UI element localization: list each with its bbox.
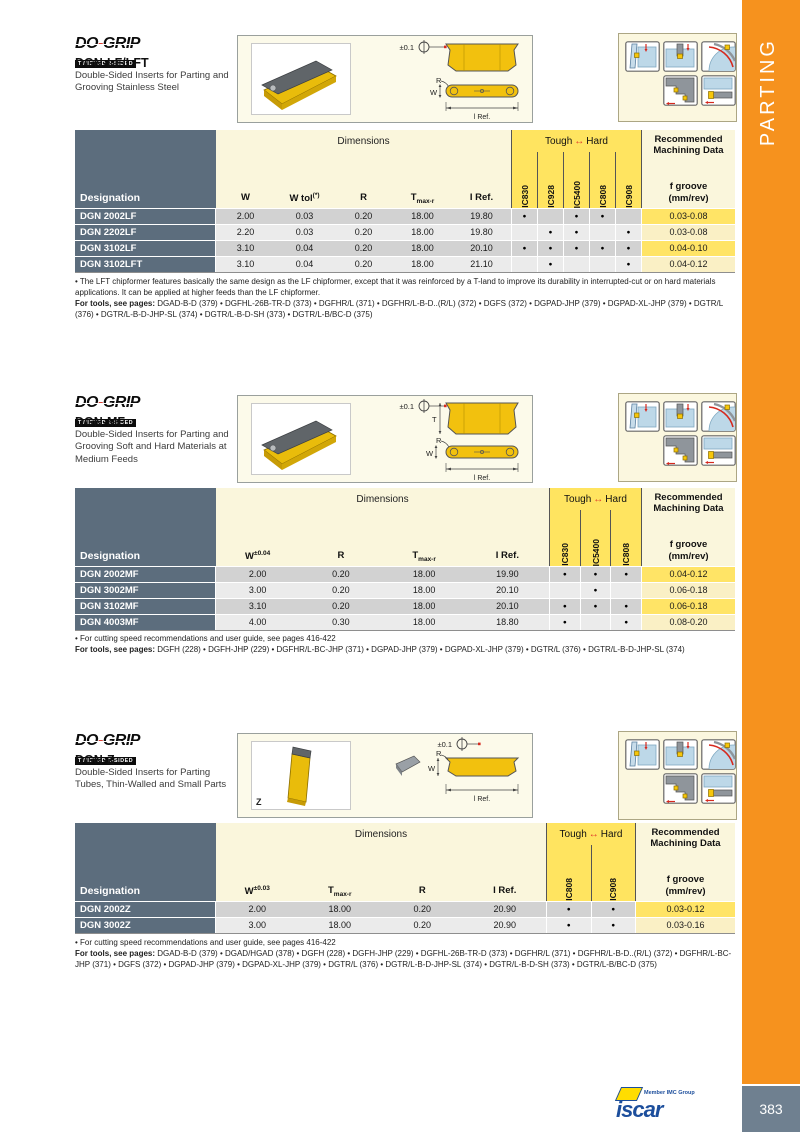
designation-cell: DGN 3002MF [75,583,216,598]
designation-cell: DGN 2202LF [75,225,216,240]
designation-cell: DGN 2002MF [75,567,216,582]
bar-parting-icon [663,401,698,432]
feed-cell: 0.04-0.10 [641,241,735,256]
length-ref-label: l Ref. [474,796,490,803]
table-row: DGN 3102LFT 3.100.040.2018.0021.10 ●● 0.… [75,256,735,272]
col-header-w: W±0.03 [216,885,299,901]
profile-grooving-icon [663,773,698,804]
table-row: DGN 3102MF 3.100.2018.0020.10 ●●● 0.06-0… [75,598,735,614]
tolerance-label: ±0.1 [437,740,452,749]
grade-header: IC5400 [580,510,611,566]
designation-cell: DGN 2002LF [75,209,216,224]
grade-header: IC928 [537,152,563,208]
bar-parting-icon [663,41,698,72]
dimensions-header-group: Dimensions W W tol(*) R Tmax-r I Ref. [216,130,511,208]
machining-header-group: Recommended Machining Data f groove(mm/r… [635,823,735,901]
section-note: • The LFT chipformer features basically … [75,277,737,298]
section-title: DGN-MF [75,415,125,429]
col-header-tmax: Tmax-r [299,885,382,901]
parting-blade-icon [625,739,660,770]
circular-machining-icon [701,41,736,72]
page-number-box: 383 [742,1086,800,1132]
iscar-logo: Member IMC Group iscar [612,1086,722,1128]
section-subtitle: Double-Sided Inserts for Parting and Gro… [75,429,235,466]
dimensions-header-group: Dimensions W±0.04 R Tmax-r I Ref. [216,488,549,566]
radius-label: R [436,749,442,758]
grades-header-group: Tough↔Hard IC830 IC928 IC5400 IC808 IC90… [511,130,641,208]
width-label: W [426,449,434,458]
member-imc-label: Member IMC Group [644,1090,695,1096]
feed-cell: 0.04-0.12 [641,257,735,272]
feed-cell: 0.06-0.18 [641,599,735,614]
logo-stripe [75,741,163,742]
insert-photo [251,43,351,115]
designation-cell: DGN 3102LFT [75,257,216,272]
table-row: DGN 3102LF 3.100.040.2018.0020.10 ●●●●● … [75,240,735,256]
feed-cell: 0.08-0.20 [641,615,735,630]
designation-header: Designation [75,130,216,208]
dogrip-wordmark: DO-GRIP [75,36,195,52]
table-row: DGN 3002MF 3.000.2018.0020.10 ● 0.06-0.1… [75,582,735,598]
insert-photo [251,403,351,475]
catalog-page: DO-GRIP TWISTED 2-SIDED DGN-LF/LFT Doubl… [0,0,800,1132]
table-header: Designation Dimensions W±0.03 Tmax-r R I… [75,823,735,901]
feed-cell: 0.04-0.12 [641,567,735,582]
machining-header-group: Recommended Machining Data f groove(mm/r… [641,488,735,566]
grade-header: IC808 [547,845,591,901]
dimension-drawing: ±0.1 R W l Ref. [356,736,528,817]
section-subtitle: Double-Sided Inserts for Parting and Gro… [75,70,230,95]
section-subtitle: Double-Sided Inserts for Parting Tubes, … [75,767,227,792]
dimension-drawing: ±0.1 R W l Ref. [356,38,528,122]
table-header: Designation Dimensions W±0.04 R Tmax-r I… [75,488,735,566]
technical-drawing-box: ±0.1 T R W l Ref. [237,395,533,483]
radius-label: R [436,76,442,85]
parting-blade-icon [625,401,660,432]
insert-photo-illustration [252,44,350,114]
table-header: Designation Dimensions W W tol(*) R Tmax… [75,130,735,208]
tough-hard-arrow: ↔ [587,829,601,840]
section-note: • For cutting speed recommendations and … [75,634,737,645]
tough-hard-arrow: ↔ [591,494,605,505]
parting-tab: PARTING [742,0,800,1084]
insert-table-dgn-mf: Designation Dimensions W±0.04 R Tmax-r I… [75,488,735,631]
parting-tab-label: PARTING [757,38,780,146]
grade-header: IC908 [591,845,636,901]
radius-label: R [436,436,442,445]
face-grooving-icon [701,75,736,106]
tough-hard-arrow: ↔ [572,136,586,147]
grade-header: IC908 [615,152,641,208]
tolerance-label: ±0.1 [399,402,414,411]
grade-header: IC830 [550,510,580,566]
designation-cell: DGN 2002Z [75,902,216,917]
thickness-label: T [432,415,437,424]
dimensions-header-group: Dimensions W±0.03 Tmax-r R I Ref. [216,823,546,901]
tools-reference: For tools, see pages: DGAD-B-D (379) • D… [75,949,737,970]
designation-cell: DGN 3102LF [75,241,216,256]
col-header-lref: I Ref. [464,885,547,901]
designation-header: Designation [75,488,216,566]
machining-header-group: Recommended Machining Data f groove(mm/r… [641,130,735,208]
length-ref-label: l Ref. [474,475,490,482]
section-title: DGN-Z [75,753,115,767]
col-header-lref: I Ref. [452,192,511,208]
logo-stripe [75,403,163,404]
application-icon-panel [618,33,737,122]
col-header-lref: I Ref. [466,550,549,566]
grade-header: IC830 [512,152,537,208]
dimension-drawing: ±0.1 T R W l Ref. [356,398,528,482]
table-row: DGN 2002MF 2.000.2018.0019.90 ●●● 0.04-0… [75,566,735,582]
face-grooving-icon [701,435,736,466]
parting-blade-icon [625,41,660,72]
bar-parting-icon [663,739,698,770]
designation-cell: DGN 3002Z [75,918,216,933]
table-row: DGN 2002LF 2.000.030.2018.0019.80 ●●● 0.… [75,208,735,224]
section-note: • For cutting speed recommendations and … [75,938,737,949]
designation-header: Designation [75,823,216,901]
page-number: 383 [759,1101,782,1117]
col-header-tmax: Tmax-r [383,550,466,566]
designation-cell: DGN 4003MF [75,615,216,630]
table-row: DGN 2002Z 2.0018.000.2020.90 ●● 0.03-0.1… [75,901,735,917]
grades-header-group: Tough↔Hard IC830 IC5400 IC808 [549,488,641,566]
table-row: DGN 3002Z 3.0018.000.2020.90 ●● 0.03-0.1… [75,917,735,933]
feed-cell: 0.06-0.18 [641,583,735,598]
logo-stripe [75,44,163,45]
col-header-wtol: W tol(*) [275,192,334,208]
designation-cell: DGN 3102MF [75,599,216,614]
feed-cell: 0.03-0.08 [641,209,735,224]
feed-cell: 0.03-0.12 [635,902,735,917]
width-label: W [430,88,438,97]
grade-header: IC5400 [563,152,589,208]
table-row: DGN 2202LF 2.200.030.2018.0019.80 ●●● 0.… [75,224,735,240]
feed-cell: 0.03-0.16 [635,918,735,933]
insert-photo: Z [251,741,351,810]
z-label: Z [256,797,262,807]
col-header-r: R [381,885,464,901]
col-header-tmax: Tmax-r [393,192,452,208]
col-header-w: W±0.04 [216,550,299,566]
face-grooving-icon [701,773,736,804]
circular-machining-icon [701,739,736,770]
grade-header: IC808 [589,152,615,208]
section-title: DGN-LF/LFT [75,56,149,70]
col-header-w: W [216,192,275,208]
insert-photo-illustration [252,404,350,474]
insert-table-dgn-z: Designation Dimensions W±0.03 Tmax-r R I… [75,823,735,934]
col-header-r: R [299,550,382,566]
tolerance-label: ±0.1 [399,43,414,52]
application-icon-panel [618,731,737,820]
tools-reference: For tools, see pages: DGFH (228) • DGFH-… [75,645,737,656]
grade-header: IC808 [610,510,641,566]
table-row: DGN 4003MF 4.000.3018.0018.80 ●● 0.08-0.… [75,614,735,630]
circular-machining-icon [701,401,736,432]
iscar-wordmark: iscar [616,1097,662,1123]
insert-table-dgn-lf: Designation Dimensions W W tol(*) R Tmax… [75,130,735,273]
col-header-r: R [334,192,393,208]
profile-grooving-icon [663,435,698,466]
profile-grooving-icon [663,75,698,106]
width-label: W [428,764,436,773]
technical-drawing-box: Z ±0.1 R W l Ref. [237,733,533,818]
insert-photo-illustration [252,742,350,809]
grades-header-group: Tough↔Hard IC808 IC908 [546,823,635,901]
length-ref-label: l Ref. [474,114,490,121]
application-icon-panel [618,393,737,482]
feed-cell: 0.03-0.08 [641,225,735,240]
technical-drawing-box: ±0.1 R W l Ref. [237,35,533,123]
tools-reference: For tools, see pages: DGAD-B-D (379) • D… [75,299,737,320]
